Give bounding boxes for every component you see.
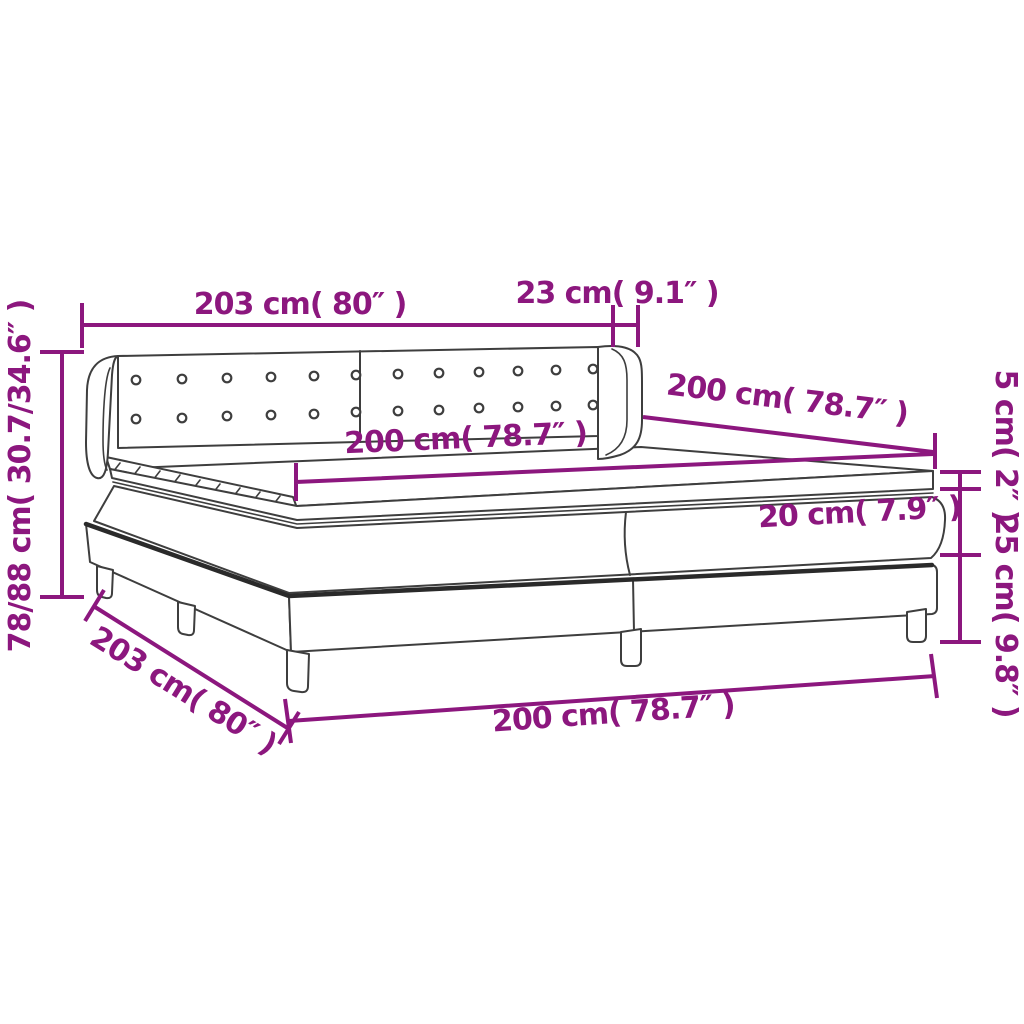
base-seam: [633, 579, 634, 632]
headboard-button: [514, 367, 523, 376]
headboard-button: [475, 404, 484, 413]
headboard-button: [435, 406, 444, 415]
headboard-button: [267, 373, 276, 382]
headboard-button: [267, 411, 276, 420]
dim-height-label: 78/88 cm( 30.7/34.6″ ): [3, 300, 38, 653]
bed-dimension-diagram-page: 203 cm( 80″ ) 23 cm( 9.1″ ) 78/88 cm( 30…: [0, 0, 1024, 1024]
dim-headboard-width-label: 203 cm( 80″ ): [194, 287, 407, 322]
headboard-button: [589, 365, 598, 374]
headboard-button: [352, 408, 361, 417]
bed-leg-left-mid: [178, 602, 195, 635]
headboard-button: [310, 372, 319, 381]
headboard-button: [394, 407, 403, 416]
headboard-button: [514, 403, 523, 412]
dim-height-line: [40, 352, 84, 597]
headboard-button: [223, 412, 232, 421]
dim-topper-height-label: 5 cm( 2″ ): [988, 370, 1023, 523]
dim-base-height-label: 25 cm( 9.8″ ): [988, 514, 1023, 717]
headboard-button: [394, 370, 403, 379]
headboard-button: [589, 401, 598, 410]
bed-leg-front-right: [907, 609, 926, 642]
bed-dimension-diagram: 203 cm( 80″ ) 23 cm( 9.1″ ) 78/88 cm( 30…: [0, 0, 1024, 1024]
headboard-button: [132, 376, 141, 385]
headboard-button: [552, 402, 561, 411]
headboard-button: [223, 374, 232, 383]
headboard-button: [310, 410, 319, 419]
headboard-button: [352, 371, 361, 380]
bed-leg-left-rear: [97, 566, 113, 598]
headboard-button: [178, 414, 187, 423]
dim-base-diagonal-label: 203 cm( 80″ ): [84, 620, 283, 762]
dim-bottom-width-label: 200 cm( 78.7″ ): [491, 688, 736, 740]
bed-leg-front-mid: [621, 629, 641, 666]
headboard-button: [552, 366, 561, 375]
headboard-button: [132, 415, 141, 424]
bed-leg-front-corner: [287, 650, 309, 692]
headboard-button: [435, 369, 444, 378]
headboard-right-wing: [598, 346, 642, 459]
headboard-button: [178, 375, 187, 384]
headboard-button: [475, 368, 484, 377]
dim-wing-depth-label: 23 cm( 9.1″ ): [515, 276, 718, 311]
